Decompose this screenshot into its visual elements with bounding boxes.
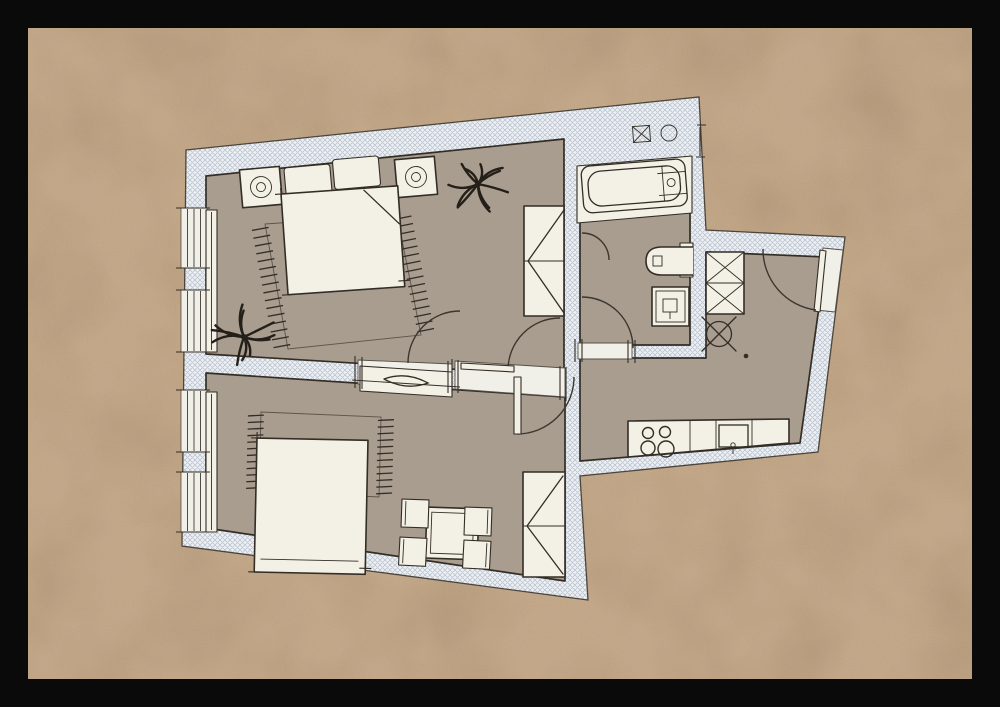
rug-fringe-tick <box>376 486 392 487</box>
rug-fringe-tick <box>377 453 393 454</box>
toilet <box>646 243 693 277</box>
rug-fringe-tick <box>378 433 394 434</box>
wardrobe-bedroom-top <box>524 206 564 316</box>
rug-fringe-tick <box>377 446 393 447</box>
bed-bottom <box>248 432 374 575</box>
rug-fringe-tick <box>377 440 393 441</box>
rug-fringe-tick <box>248 415 264 416</box>
wardrobe-bedroom-bottom <box>523 472 565 577</box>
rug-fringe-tick <box>377 473 393 474</box>
washing-machine <box>652 287 689 326</box>
bed-top <box>275 179 411 295</box>
rug-fringe-tick <box>377 466 393 467</box>
rug-fringe-tick <box>378 426 394 427</box>
rug-fringe-tick <box>376 493 392 494</box>
floor-plan-canvas <box>0 0 1000 707</box>
door-leaf-vertical <box>514 377 521 434</box>
pillow-right <box>332 156 380 190</box>
nightstand-right <box>394 156 437 197</box>
rug-fringe-tick <box>248 422 264 423</box>
hall-wardrobe <box>706 252 744 314</box>
framed-floor-plan <box>0 0 1000 707</box>
rug-fringe-tick <box>248 428 264 429</box>
rug-fringe-tick <box>247 435 263 436</box>
rug-fringe-tick <box>376 480 392 481</box>
rug-fringe-tick <box>378 420 394 421</box>
nightstand-left <box>239 166 282 207</box>
rug-fringe-tick <box>377 460 393 461</box>
bathroom-doorway <box>578 343 632 359</box>
